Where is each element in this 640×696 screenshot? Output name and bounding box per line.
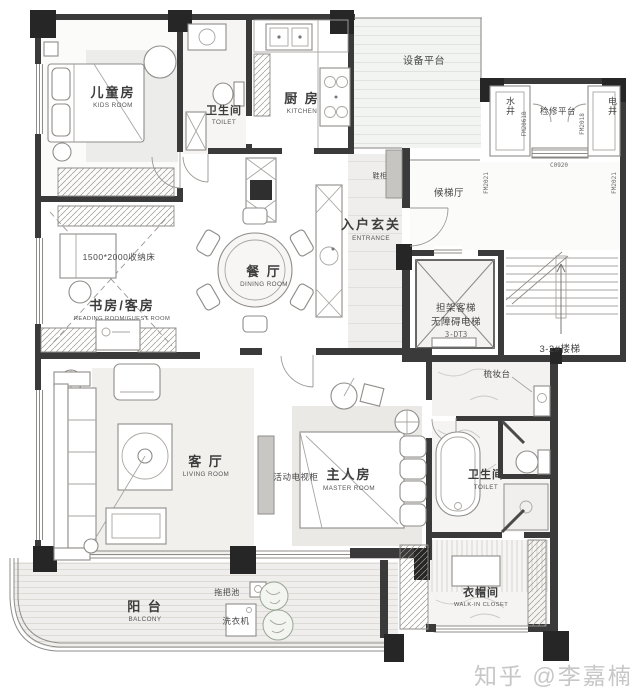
label-tv-cabinet: 活动电视柜 bbox=[273, 472, 318, 482]
label-water-shaft: 水井 bbox=[505, 95, 515, 116]
code-fm2061b: FM2061B bbox=[521, 111, 528, 137]
label-lift-l1: 担架客梯 bbox=[436, 302, 476, 314]
code-fm2021-right: FM2021 bbox=[611, 172, 618, 194]
plant-2 bbox=[263, 610, 293, 640]
label-master-en: MASTER ROOM bbox=[323, 485, 375, 492]
tv-cabinet bbox=[258, 436, 274, 514]
label-lift-hall: 候梯厅 bbox=[434, 187, 464, 199]
label-study-en: READING ROOM/GUEST ROOM bbox=[74, 316, 170, 322]
label-balcony-zh: 阳 台 bbox=[127, 599, 163, 614]
label-lift-l2: 无障碍电梯 bbox=[431, 316, 481, 328]
label-kitchen-en: KITCHEN bbox=[287, 108, 317, 115]
label-shoe-cabinet: 鞋柜 bbox=[373, 171, 388, 180]
label-storage-bed: 1500*2000收纳床 bbox=[83, 252, 156, 262]
label-bath2-en: TOILET bbox=[474, 484, 498, 491]
code-fm2018: FM2018 bbox=[579, 113, 586, 135]
closet-island bbox=[452, 556, 500, 586]
label-lift-l3: 3-DT3 bbox=[445, 330, 468, 339]
label-bath2-zh: 卫生间 bbox=[468, 467, 504, 481]
shoe-cabinet bbox=[386, 150, 402, 198]
study-desk bbox=[96, 320, 140, 350]
kids-stool bbox=[53, 143, 71, 161]
label-living-en: LIVING ROOM bbox=[183, 471, 229, 478]
label-elec-shaft: 电井 bbox=[607, 95, 617, 116]
master-furniture bbox=[258, 378, 426, 528]
code-fm2021-left: FM2021 bbox=[483, 172, 490, 194]
code-c0920: C0920 bbox=[550, 162, 568, 169]
label-dining-zh: 餐 厅 bbox=[245, 264, 282, 279]
fridge bbox=[250, 180, 272, 200]
label-bath1-en: TOILET bbox=[212, 119, 236, 126]
label-washer: 洗衣机 bbox=[222, 616, 249, 626]
label-kids-zh: 儿童房 bbox=[89, 85, 135, 100]
stairs bbox=[506, 252, 618, 334]
label-equipment: 设备平台 bbox=[403, 54, 445, 67]
living-armchair bbox=[114, 364, 160, 400]
watermark: 知乎 @李嘉楠 bbox=[474, 663, 633, 689]
label-living-zh: 客 厅 bbox=[188, 454, 224, 469]
label-closet-en: WALK-IN CLOSET bbox=[454, 602, 508, 608]
label-inspection: 检修平台 bbox=[540, 106, 576, 116]
floor-plan-page: 儿童房 KIDS ROOM 卫生间 TOILET 厨 房 KITCHEN 设备平… bbox=[0, 0, 640, 696]
label-mop-sink: 拖把池 bbox=[214, 587, 240, 597]
label-balcony-en: BALCONY bbox=[129, 616, 162, 623]
equipment-lines bbox=[354, 18, 481, 148]
label-study-zh: 书房/客房 bbox=[89, 298, 155, 313]
label-master-zh: 主人房 bbox=[326, 467, 371, 482]
living-sofa bbox=[68, 388, 96, 548]
plant-1 bbox=[260, 582, 288, 610]
floor-plan-drawing: 儿童房 KIDS ROOM 卫生间 TOILET 厨 房 KITCHEN 设备平… bbox=[0, 0, 640, 696]
coffee-table bbox=[106, 508, 166, 544]
label-bath1-zh: 卫生间 bbox=[206, 103, 242, 117]
kids-chair bbox=[144, 46, 176, 78]
elevator-door-gap bbox=[434, 246, 462, 255]
lift-hall-floor bbox=[410, 162, 620, 250]
dining-sideboard bbox=[316, 185, 342, 317]
toilet1-bowl bbox=[213, 83, 233, 105]
label-closet-zh: 衣帽间 bbox=[463, 585, 499, 599]
toilet2-bowl bbox=[516, 451, 538, 473]
label-kitchen-zh: 厨 房 bbox=[284, 91, 320, 106]
dressing-table bbox=[534, 386, 550, 416]
label-stairs: 3-2#楼梯 bbox=[539, 343, 580, 355]
label-dining-en: DINING ROOM bbox=[240, 281, 288, 288]
study-table bbox=[69, 281, 91, 303]
label-dresser: 梳妆台 bbox=[483, 369, 510, 379]
balcony-planks bbox=[14, 562, 398, 648]
label-entrance-en: ENTRANCE bbox=[352, 235, 390, 242]
label-entrance-zh: 入户玄关 bbox=[341, 217, 401, 232]
label-kids-en: KIDS ROOM bbox=[93, 102, 133, 109]
